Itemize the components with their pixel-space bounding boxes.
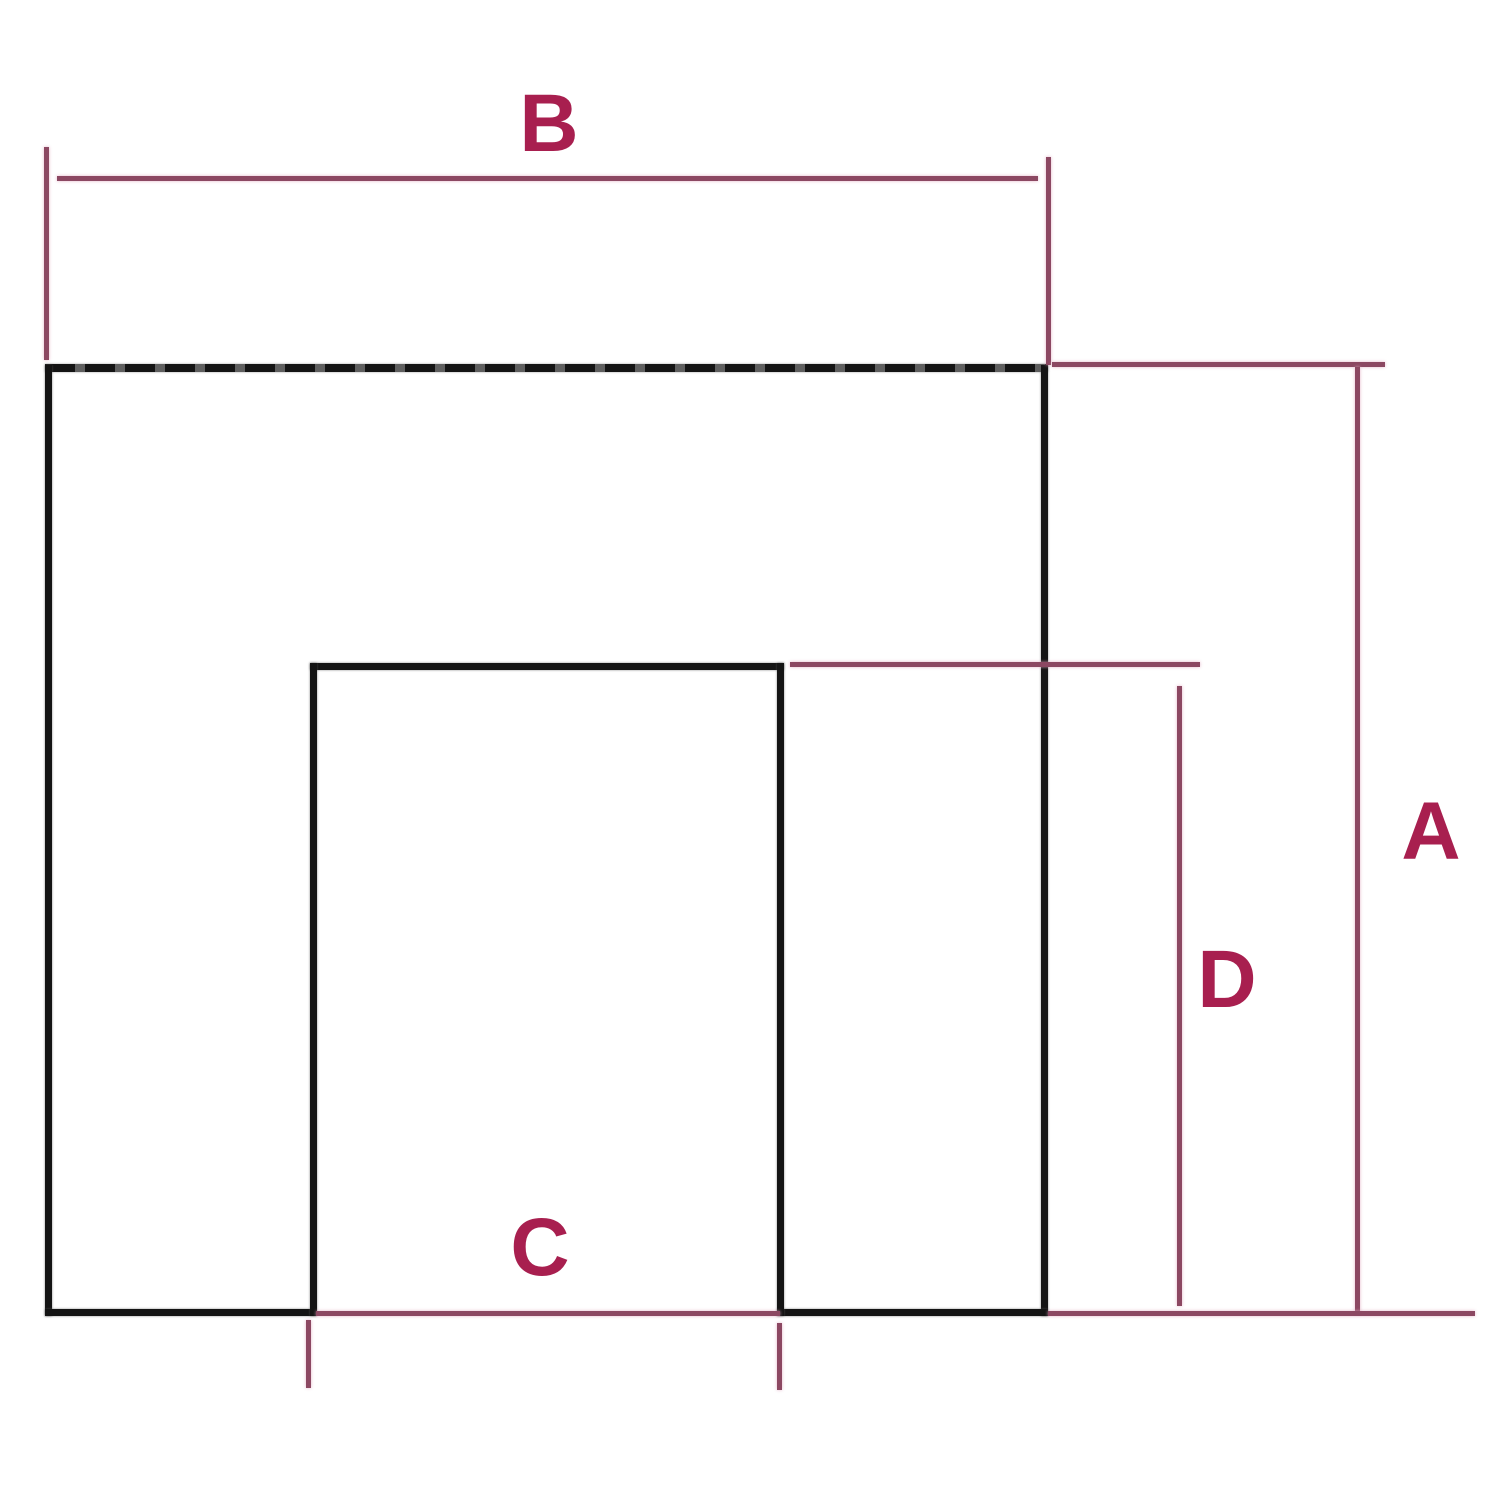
dimension-b-label: B <box>519 83 578 165</box>
dimension-a-label: A <box>1401 791 1460 873</box>
dimension-a-line <box>1355 367 1360 1314</box>
dimension-c-tick-right <box>777 1323 782 1390</box>
outer-frame-top-edge <box>45 364 1048 372</box>
dimension-c-line <box>316 1311 780 1316</box>
dimension-d-label: D <box>1197 939 1256 1021</box>
outer-frame-right-edge <box>1041 365 1048 1316</box>
dimension-b-line <box>57 176 1038 181</box>
opening-right-edge <box>777 663 784 1316</box>
dimension-b-tick-right <box>1046 157 1051 365</box>
dimension-c-label: C <box>510 1207 569 1289</box>
dimension-c-tick-left <box>306 1320 311 1388</box>
dimension-a-extension-line <box>1052 362 1385 367</box>
outer-frame-bottom-left-edge <box>45 1309 316 1316</box>
outer-frame-bottom-right-edge <box>777 1309 1048 1316</box>
opening-left-edge <box>310 663 317 1316</box>
outer-frame-left-edge <box>45 365 52 1316</box>
dimension-diagram: B A D C <box>0 0 1500 1500</box>
dimension-b-tick-left <box>44 147 49 360</box>
dimension-d-line <box>1177 686 1182 1306</box>
dimension-d-extension-line <box>790 662 1200 667</box>
bottom-baseline-right <box>1048 1311 1475 1316</box>
opening-top-edge <box>310 663 784 670</box>
